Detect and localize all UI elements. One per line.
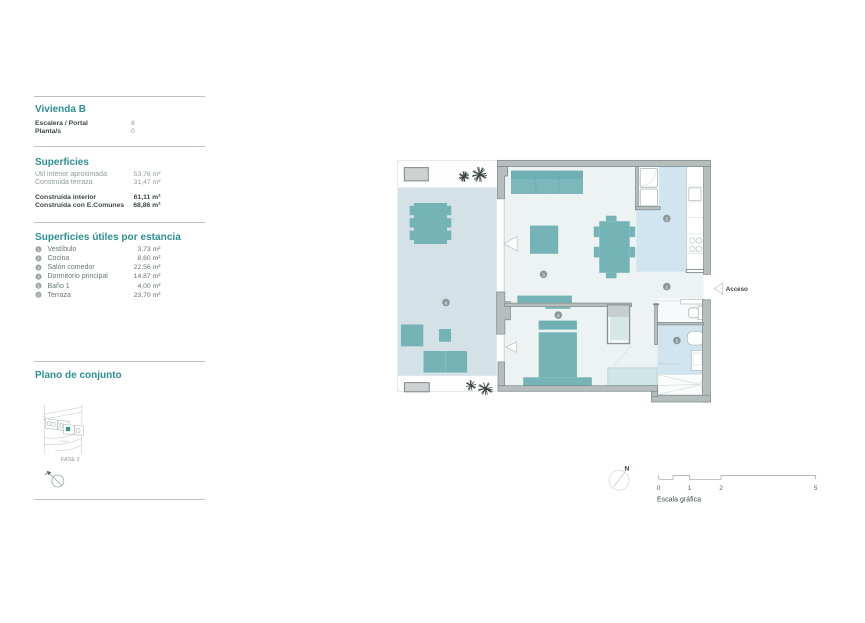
svg-text:4: 4 <box>557 313 560 319</box>
svg-text:2: 2 <box>665 217 668 223</box>
svg-text:1: 1 <box>688 485 692 492</box>
svg-text:5: 5 <box>676 339 679 345</box>
svg-text:5: 5 <box>814 485 818 492</box>
svg-text:N: N <box>625 466 630 473</box>
svg-text:2: 2 <box>719 485 723 492</box>
svg-text:3: 3 <box>542 272 545 278</box>
svg-text:6: 6 <box>445 301 448 307</box>
svg-text:0: 0 <box>657 485 661 492</box>
svg-text:Escala gráfica: Escala gráfica <box>657 497 701 504</box>
svg-text:1: 1 <box>665 285 668 291</box>
svg-text:Acceso: Acceso <box>726 286 748 293</box>
